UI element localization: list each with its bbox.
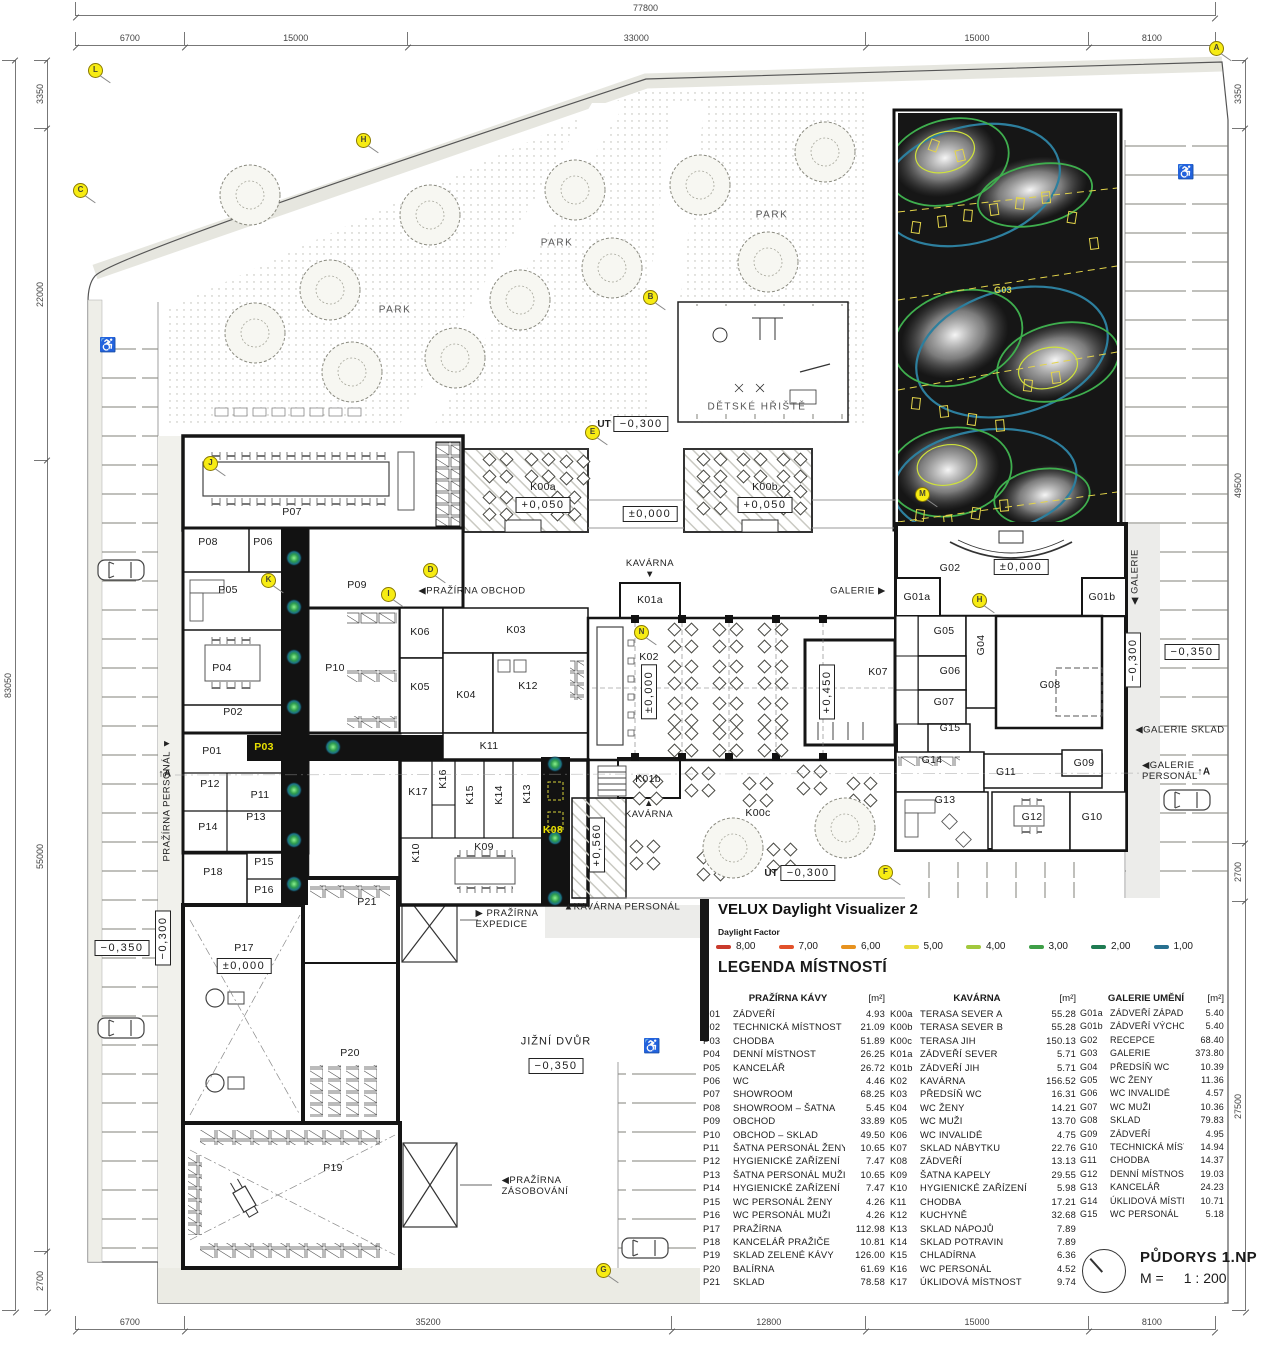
- room-label: P07: [282, 506, 302, 518]
- wheelchair-icon: ♿: [99, 337, 116, 354]
- room-label: G06: [940, 665, 961, 677]
- room-label: G15: [940, 722, 961, 734]
- annotation-label: ◀ GALERIE: [1131, 549, 1142, 605]
- annotation-label: ▶ PRAŽÍRNA EXPEDICE: [476, 909, 539, 931]
- legend-row: K00bTERASA SEVER B55.28: [890, 1020, 1076, 1033]
- room-label: K01a: [637, 594, 663, 606]
- legend-row: K13SKLAD NÁPOJŮ7.89: [890, 1222, 1076, 1235]
- daylight-factor-swatch: [1029, 945, 1044, 949]
- legend-row: G14ÚKLIDOVÁ MÍSTNOST10.71: [1080, 1195, 1224, 1208]
- room-label: G09: [1074, 757, 1095, 769]
- reference-marker: G: [596, 1263, 611, 1278]
- room-label: P04: [212, 662, 232, 674]
- legend-row: P21SKLAD78.58: [703, 1275, 885, 1288]
- room-label: K08: [543, 824, 563, 836]
- room-label: G08: [1040, 679, 1061, 691]
- daylight-factor-swatch: [779, 945, 794, 949]
- k07-marks: [818, 722, 863, 740]
- annotation-label: PRAŽÍRNA PERSONÁL ▼: [163, 738, 174, 861]
- room-label: K01b: [635, 773, 661, 785]
- annotation-label: GALERIE ▶: [830, 587, 886, 598]
- stairs: [598, 766, 626, 796]
- legend-row: K07SKLAD NÁBYTKU22.76: [890, 1141, 1076, 1154]
- daylight-visualization: [866, 104, 1128, 546]
- room-label: P08: [198, 536, 218, 548]
- legend-row: G15WC PERSONÁL5.18: [1080, 1208, 1224, 1221]
- annotation-label: PARK: [541, 237, 574, 249]
- legend-row: K08ZÁDVEŘÍ13.13: [890, 1154, 1076, 1167]
- legend-row: P02TECHNICKÁ MÍSTNOST21.09: [703, 1020, 885, 1033]
- daylight-factor-value: 8,00: [736, 941, 755, 952]
- legend-row: K00aTERASA SEVER A55.28: [890, 1007, 1076, 1020]
- room-label: G04: [975, 635, 987, 656]
- annotation-label: ◀GALERIE SKLAD: [1135, 726, 1224, 737]
- north-symbol: [1082, 1249, 1126, 1293]
- elevation-label: −0,300: [155, 911, 171, 966]
- elevation-label: ±0,000: [623, 506, 678, 522]
- dim-segment: 77800: [75, 2, 1215, 16]
- daylight-factor-swatch: [966, 945, 981, 949]
- legend-row: G06WC INVALIDÉ4.57: [1080, 1087, 1224, 1100]
- legend-row: K17ÚKLIDOVÁ MÍSTNOST9.74: [890, 1275, 1076, 1288]
- room-label: K06: [410, 626, 430, 638]
- legend-row: P01ZÁDVEŘÍ4.93: [703, 1007, 885, 1020]
- dim-segment: 49500: [1232, 128, 1246, 843]
- legend-row: P03CHODBA51.89: [703, 1034, 885, 1047]
- legend-row: G01aZÁDVEŘÍ ZÁPAD5.40: [1080, 1007, 1224, 1020]
- reference-marker: D: [423, 563, 438, 578]
- legend-row: K06WC INVALIDÉ4.75: [890, 1128, 1076, 1141]
- legend-row: P14HYGIENICKÉ ZAŘÍZENÍ7.47: [703, 1181, 885, 1194]
- dim-segment: 15000: [184, 32, 407, 46]
- legend-row: K04WC ŽENY14.21: [890, 1101, 1076, 1114]
- annotation-label: KAVÁRNA ▼: [626, 559, 674, 581]
- room-label: K12: [518, 680, 538, 692]
- legend-header-text: KAVÁRNA: [916, 993, 1038, 1004]
- room-label: G02: [940, 562, 961, 574]
- room-label: P06: [253, 536, 273, 548]
- daylight-factor-value: 2,00: [1111, 941, 1130, 952]
- scale-value: 1 : 200: [1184, 1270, 1227, 1286]
- legend-row: P06WC4.46: [703, 1074, 885, 1087]
- room-label: K00a: [530, 481, 556, 493]
- legend-row: K02KAVÁRNA156.52: [890, 1074, 1076, 1087]
- daylight-factor-swatch: [716, 945, 731, 949]
- legend-column-prazirna: PRAŽÍRNA KÁVY [m²] P01ZÁDVEŘÍ4.93 P02TEC…: [703, 993, 885, 1289]
- annotation-label: ↑A: [1197, 766, 1210, 778]
- room-label: P10: [325, 662, 345, 674]
- elevation-label: +0,050: [516, 497, 571, 513]
- legend-header-unit: [m²]: [1186, 993, 1224, 1004]
- elevation-value: −0,300: [614, 416, 669, 432]
- dim-segment: 27500: [1232, 901, 1246, 1310]
- velux-title: VELUX Daylight Visualizer 2: [718, 901, 918, 918]
- room-label: P05: [218, 584, 238, 596]
- daylight-factor-scale: 8,00 7,00 6,00 5,00 4,00 3,00 2,00: [716, 941, 1216, 952]
- reference-marker: K: [261, 573, 276, 588]
- legend-row: P10OBCHOD – SKLAD49.50: [703, 1128, 885, 1141]
- legend-row: G13KANCELÁŘ24.23: [1080, 1181, 1224, 1194]
- room-label: K09: [474, 841, 494, 853]
- daylight-factor-item: 7,00: [779, 941, 842, 952]
- elevation-value: ±0,000: [641, 665, 657, 720]
- dim-segment: 15000: [865, 1316, 1088, 1330]
- room-label: G01a: [904, 591, 931, 603]
- elevation-label: −0,350: [529, 1058, 584, 1074]
- room-label: P16: [254, 884, 274, 896]
- room-label: K16: [437, 769, 449, 789]
- room-label: P18: [203, 866, 223, 878]
- room-label: P21: [357, 896, 377, 908]
- room-label: K07: [868, 666, 888, 678]
- legend-row: G04PŘEDSÍŇ WC10.39: [1080, 1061, 1224, 1074]
- reference-marker: H: [356, 133, 371, 148]
- room-label: P01: [202, 745, 222, 757]
- reference-marker: N: [634, 625, 649, 640]
- dim-segment: 2700: [1232, 843, 1246, 902]
- annotation-label: ◀PRAŽÍRNA OBCHOD: [418, 587, 525, 598]
- daylight-factor-item: 8,00: [716, 941, 779, 952]
- room-label: K13: [521, 784, 533, 804]
- dim-segment: 2700: [34, 1251, 48, 1310]
- legend-row: K00cTERASA JIH150.13: [890, 1034, 1076, 1047]
- legend-row: G03GALERIE373.80: [1080, 1047, 1224, 1060]
- reference-marker: L: [88, 63, 103, 78]
- room-label: K10: [410, 843, 422, 863]
- reference-marker: H: [972, 593, 987, 608]
- dim-segment: 83050: [2, 60, 16, 1310]
- room-label: P11: [251, 789, 270, 801]
- legend-row: P15WC PERSONÁL ŽENY4.26: [703, 1195, 885, 1208]
- room-label: G11: [996, 766, 1016, 778]
- legend-row: K11CHODBA17.21: [890, 1195, 1076, 1208]
- dim-segment: 35200: [184, 1316, 671, 1330]
- legend-panel: VELUX Daylight Visualizer 2 Daylight Fac…: [700, 899, 1224, 1303]
- room-label: P17: [234, 942, 254, 954]
- room-label: P03: [254, 741, 274, 753]
- dim-segment: 3350: [34, 60, 48, 128]
- dim-segment: 33000: [407, 32, 866, 46]
- elevation-label: UT −0,300: [597, 416, 668, 432]
- annotation-label: ▲ KAVÁRNA: [625, 799, 673, 821]
- legend-row: P09OBCHOD33.89: [703, 1114, 885, 1127]
- room-label: K00c: [745, 807, 770, 819]
- daylight-factor-item: 4,00: [966, 941, 1029, 952]
- wheelchair-icon: ♿: [1177, 164, 1194, 181]
- dim-bottom-segments: 67003520012800150008100: [75, 1316, 1216, 1330]
- room-label: K14: [493, 785, 505, 805]
- dim-left-segments: 335022000550002700: [34, 60, 48, 1311]
- legend-row: G12DENNÍ MÍSTNOST19.03: [1080, 1168, 1224, 1181]
- annotation-label: DĚTSKÉ HŘIŠTĚ: [708, 401, 807, 413]
- legend-column-kavarna: KAVÁRNA [m²] K00aTERASA SEVER A55.28 K00…: [890, 993, 1076, 1289]
- elevation-value: +0,050: [516, 497, 571, 513]
- legend-row: G07WC MUŽI10.36: [1080, 1101, 1224, 1114]
- daylight-factor-item: 5,00: [904, 941, 967, 952]
- daylight-factor-value: 3,00: [1049, 941, 1068, 952]
- dim-segment: 22000: [34, 128, 48, 460]
- legend-left-wall: [700, 899, 709, 1041]
- legend-row: K15CHLADÍRNA6.36: [890, 1248, 1076, 1261]
- elevation-label: +0,050: [738, 497, 793, 513]
- elevation-label: −0,350: [95, 940, 150, 956]
- legend-heading: LEGENDA MÍSTNOSTÍ: [718, 959, 887, 977]
- room-label: K04: [456, 689, 476, 701]
- room-label: P19: [323, 1162, 343, 1174]
- legend-row: P16WC PERSONÁL MUŽI4.26: [703, 1208, 885, 1221]
- daylight-factor-value: 1,00: [1174, 941, 1193, 952]
- parking-south: [905, 862, 1090, 898]
- sidewalk-left: [88, 300, 102, 1262]
- annotation-label: JIŽNÍ DVŮR: [521, 1036, 592, 1049]
- dim-segment: 12800: [671, 1316, 865, 1330]
- room-label: P15: [254, 856, 274, 868]
- daylight-factor-swatch: [1091, 945, 1106, 949]
- terrace-north-a: [463, 449, 590, 532]
- legend-row: K14SKLAD POTRAVIN7.89: [890, 1235, 1076, 1248]
- annotation-label: ◀PRAŽÍRNA ZÁSOBOVÁNÍ: [502, 1176, 569, 1198]
- room-label: K15: [464, 785, 476, 805]
- dim-top-segments: 67001500033000150008100: [75, 32, 1216, 46]
- elevation-value: ±0,000: [994, 559, 1049, 575]
- legend-row: K01aZÁDVEŘÍ SEVER5.71: [890, 1047, 1076, 1060]
- legend-row: G10TECHNICKÁ MÍSTNOST14.94: [1080, 1141, 1224, 1154]
- elevation-value: −0,300: [781, 865, 836, 881]
- room-label: G07: [934, 696, 955, 708]
- daylight-factor-item: 1,00: [1154, 941, 1217, 952]
- daylight-factor-swatch: [904, 945, 919, 949]
- dim-left-total: 83050: [2, 60, 16, 1311]
- room-label: P14: [198, 821, 218, 833]
- dim-segment: 6700: [75, 1316, 184, 1330]
- room-label: P09: [347, 579, 367, 591]
- legend-row: P20BALÍRNA61.69: [703, 1262, 885, 1275]
- dim-segment: 8100: [1088, 32, 1215, 46]
- legend-row: P18KANCELÁŘ PRAŽIČE10.81: [703, 1235, 885, 1248]
- elevation-value: −0,350: [529, 1058, 584, 1074]
- reference-marker: C: [73, 183, 88, 198]
- dim-segment: 55000: [34, 460, 48, 1252]
- legend-header-text: GALERIE UMĚNÍ: [1106, 993, 1186, 1004]
- annotation-label: ▲KAVÁRNA PERSONÁL: [564, 903, 680, 914]
- daylight-factor-swatch: [841, 945, 856, 949]
- daylight-factor-item: 3,00: [1029, 941, 1092, 952]
- legend-row: K12KUCHYNĚ32.68: [890, 1208, 1076, 1221]
- room-label: G14: [922, 754, 943, 766]
- legend-row: P17PRAŽÍRNA112.98: [703, 1222, 885, 1235]
- legend-column-header: GALERIE UMĚNÍ [m²]: [1080, 993, 1224, 1004]
- daylight-factor-value: 4,00: [986, 941, 1005, 952]
- wheelchair-icon: ♿: [643, 1038, 660, 1055]
- room-label: G10: [1082, 811, 1103, 823]
- legend-row: P13ŠATNA PERSONÁL MUŽI10.65: [703, 1168, 885, 1181]
- annotation-label: ◀GALERIE PERSONÁL: [1142, 761, 1234, 783]
- legend-row: P11ŠATNA PERSONÁL ŽENY10.65: [703, 1141, 885, 1154]
- reference-marker: I: [381, 587, 396, 602]
- legend-row: P07SHOWROOM68.25: [703, 1087, 885, 1100]
- daylight-factor-item: 2,00: [1091, 941, 1154, 952]
- annotation-label: PARK: [379, 304, 412, 316]
- room-label: K02: [639, 651, 659, 663]
- dim-segment: 6700: [75, 32, 184, 46]
- legend-row: G05WC ŽENY11.36: [1080, 1074, 1224, 1087]
- reference-marker: A: [1209, 41, 1224, 56]
- elevation-label: +0,450: [819, 665, 835, 720]
- daylight-factor-label: Daylight Factor: [718, 927, 780, 937]
- daylight-factor-value: 5,00: [924, 941, 943, 952]
- elevation-value: ±0,000: [623, 506, 678, 522]
- elevation-value: −0,350: [95, 940, 150, 956]
- reference-marker: M: [915, 487, 930, 502]
- legend-row: P04DENNÍ MÍSTNOST26.25: [703, 1047, 885, 1060]
- legend-row: G08SKLAD79.83: [1080, 1114, 1224, 1127]
- floor-plan-sheet: 77800 67001500033000150008100 6700352001…: [0, 0, 1280, 1347]
- room-label: K00b: [752, 481, 778, 493]
- elevation-label: UT −0,300: [764, 865, 835, 881]
- elevation-label: ±0,000: [641, 665, 657, 720]
- room-label: G12: [1022, 811, 1043, 823]
- annotation-label: PARK: [756, 209, 789, 221]
- daylight-factor-swatch: [1154, 945, 1169, 949]
- loading-docks: [402, 890, 492, 1227]
- room-label: P20: [340, 1047, 360, 1059]
- parking-left: [102, 330, 158, 1260]
- legend-column-header: KAVÁRNA [m²]: [890, 993, 1076, 1004]
- elevation-value: ±0,000: [217, 958, 272, 974]
- elevation-label: ±0,000: [994, 559, 1049, 575]
- room-label: P02: [223, 706, 243, 718]
- dim-segment: 15000: [865, 32, 1088, 46]
- legend-row: G01bZÁDVEŘÍ VÝCHOD5.40: [1080, 1020, 1224, 1033]
- daylight-factor-value: 6,00: [861, 941, 880, 952]
- legend-row: K10HYGIENICKÉ ZAŘÍZENÍ5.98: [890, 1181, 1076, 1194]
- legend-row: G02RECEPCE68.40: [1080, 1034, 1224, 1047]
- legend-row: P05KANCELÁŘ26.72: [703, 1061, 885, 1074]
- dim-right-segments: 335049500270027500: [1232, 60, 1246, 1311]
- daylight-factor-item: 6,00: [841, 941, 904, 952]
- legend-row: P08SHOWROOM – ŠATNA5.45: [703, 1101, 885, 1114]
- room-label: G05: [934, 625, 955, 637]
- elevation-value: −0,300: [155, 911, 171, 966]
- legend-row: G11CHODBA14.37: [1080, 1154, 1224, 1167]
- elevation-label: ±0,000: [217, 958, 272, 974]
- room-label: G13: [935, 794, 956, 806]
- legend-column-header: PRAŽÍRNA KÁVY [m²]: [703, 993, 885, 1004]
- legend-row: K05WC MUŽI13.70: [890, 1114, 1076, 1127]
- annotation-label: ↑A: [158, 768, 171, 780]
- elevation-prefix: UT: [764, 868, 777, 879]
- elevation-value: +0,560: [589, 818, 605, 873]
- legend-row: G09ZÁDVEŘÍ4.95: [1080, 1128, 1224, 1141]
- reference-marker: F: [878, 865, 893, 880]
- elevation-value: +0,450: [819, 665, 835, 720]
- elevation-value: −0,300: [1125, 633, 1141, 688]
- elevation-label: +0,560: [589, 818, 605, 873]
- terrace-south: [590, 765, 905, 898]
- reference-marker: B: [643, 290, 658, 305]
- elevation-label: −0,300: [1125, 633, 1141, 688]
- legend-column-galerie: GALERIE UMĚNÍ [m²] G01aZÁDVEŘÍ ZÁPAD5.40…: [1080, 993, 1224, 1222]
- reference-marker: J: [203, 456, 218, 471]
- legend-header-unit: [m²]: [847, 993, 885, 1004]
- legend-header-text: PRAŽÍRNA KÁVY: [729, 993, 847, 1004]
- legend-header-unit: [m²]: [1038, 993, 1076, 1004]
- legend-row: K09ŠATNA KAPELY29.55: [890, 1168, 1076, 1181]
- daylight-factor-value: 7,00: [799, 941, 818, 952]
- reference-marker: E: [585, 425, 600, 440]
- legend-row: K03PŘEDSÍŇ WC16.31: [890, 1087, 1076, 1100]
- elevation-prefix: UT: [597, 419, 610, 430]
- legend-row: K01bZÁDVEŘÍ JIH5.71: [890, 1061, 1076, 1074]
- room-label: P12: [200, 778, 220, 790]
- scale-label: M =: [1140, 1270, 1164, 1286]
- room-label: G03: [994, 285, 1012, 295]
- elevation-label: −0,350: [1165, 644, 1220, 660]
- room-label: G01b: [1089, 591, 1116, 603]
- legend-row: K16WC PERSONÁL4.52: [890, 1262, 1076, 1275]
- terrace-north-b: [684, 449, 812, 532]
- dim-top-total: 77800: [75, 2, 1216, 16]
- dim-segment: 8100: [1088, 1316, 1215, 1330]
- parking-court: [618, 1062, 700, 1298]
- room-label: K05: [410, 681, 430, 693]
- room-label: P13: [246, 811, 266, 823]
- legend-row: P19SKLAD ZELENÉ KÁVY126.00: [703, 1248, 885, 1261]
- elevation-value: +0,050: [738, 497, 793, 513]
- room-label: K17: [408, 786, 428, 798]
- elevation-value: −0,350: [1165, 644, 1220, 660]
- dim-segment: 3350: [1232, 60, 1246, 128]
- legend-row: P12HYGIENICKÉ ZAŘÍZENÍ7.47: [703, 1154, 885, 1167]
- room-label: K03: [506, 624, 526, 636]
- room-label: K11: [480, 740, 499, 752]
